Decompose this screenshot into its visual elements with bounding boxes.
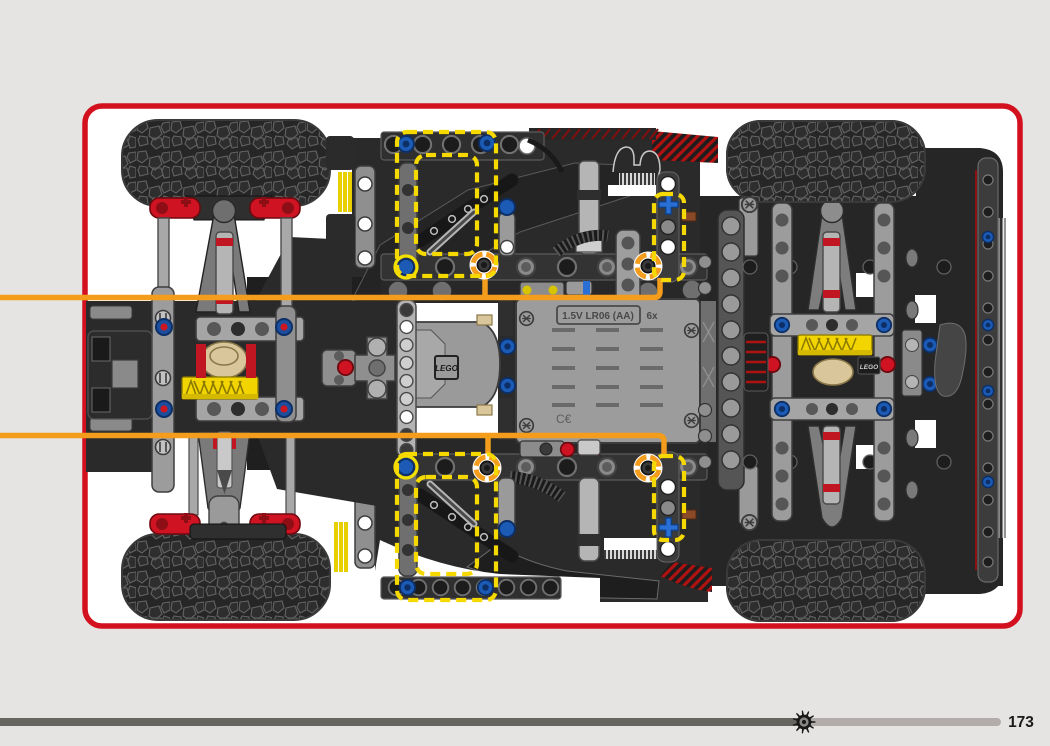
svg-text:6x: 6x: [646, 311, 658, 322]
svg-text:1.5V LR06 (AA): 1.5V LR06 (AA): [562, 311, 634, 322]
svg-text:173: 173: [1008, 714, 1034, 731]
svg-text:LEGO: LEGO: [435, 364, 458, 373]
svg-text:C€: C€: [556, 412, 572, 426]
svg-text:LEGO: LEGO: [860, 364, 878, 371]
